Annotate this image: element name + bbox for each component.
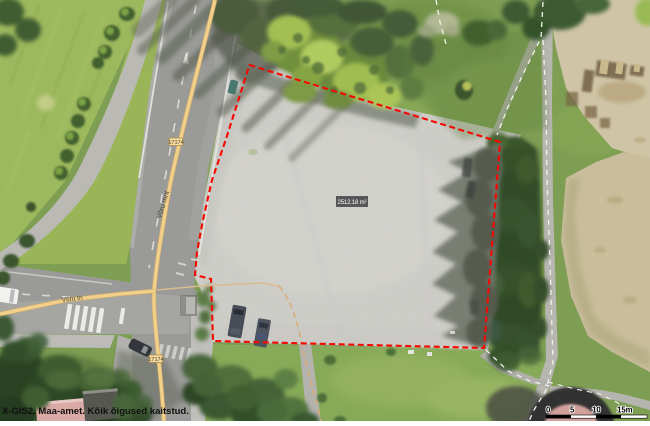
svg-text:17174: 17174 <box>148 357 163 363</box>
svg-text:5: 5 <box>570 406 575 415</box>
svg-text:X-GIS2. Maa-amet. Kõik õigused: X-GIS2. Maa-amet. Kõik õigused kaitstud. <box>2 406 189 417</box>
svg-text:10: 10 <box>592 406 601 415</box>
svg-text:2512.18 m²: 2512.18 m² <box>338 200 367 206</box>
svg-text:17174: 17174 <box>168 140 183 146</box>
svg-text:15m: 15m <box>617 406 633 415</box>
svg-text:0: 0 <box>546 406 551 415</box>
